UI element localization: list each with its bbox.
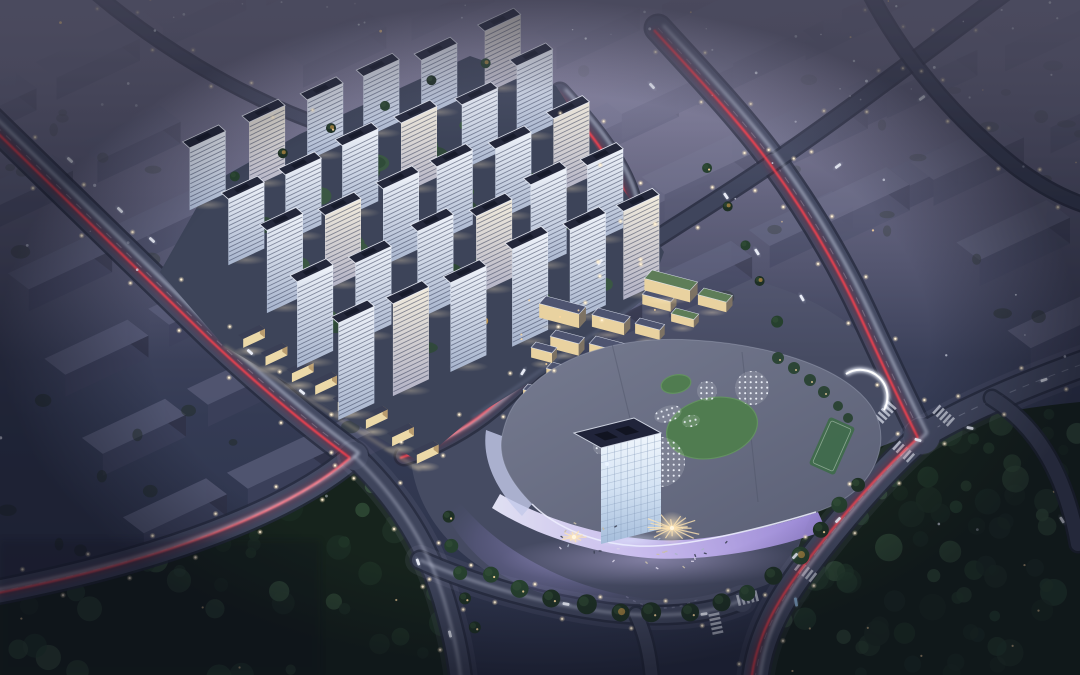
vignette-layer	[0, 0, 1080, 675]
architectural-night-rendering	[0, 0, 1080, 675]
rendering-stage	[0, 0, 1080, 675]
corner-shade	[0, 540, 320, 675]
